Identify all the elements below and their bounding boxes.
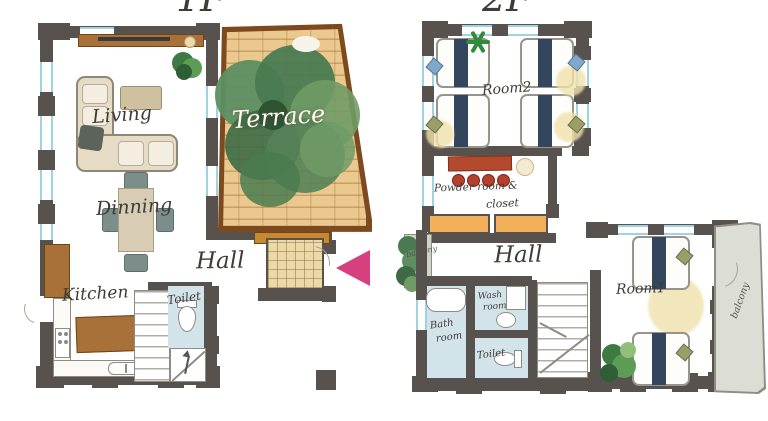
stove-burner (64, 340, 68, 344)
wash-sink (496, 312, 516, 328)
tree-foliage (240, 152, 300, 207)
terrace-label: Terrace (231, 102, 326, 132)
sofa-corner-cushion (77, 124, 104, 151)
window (40, 170, 53, 200)
wall (528, 280, 537, 380)
living-label: Living (91, 104, 152, 127)
stairs-arrow-head (182, 349, 191, 358)
window (508, 25, 538, 36)
plant-icon (620, 342, 636, 358)
sink-faucet (125, 364, 127, 373)
stairs-2f (537, 282, 588, 378)
room1-label: Room1 (616, 281, 666, 297)
rug (556, 66, 586, 96)
wall-pillar (38, 150, 55, 170)
sofa-cushion (82, 84, 108, 104)
kitchen-island (75, 315, 140, 353)
floorplan-canvas: 1F 2F (0, 0, 768, 421)
wall (206, 30, 218, 86)
bathtub (426, 288, 466, 312)
window (664, 225, 694, 235)
hall-label-2f: Hall (494, 244, 543, 268)
wall (548, 156, 557, 208)
tv-screen (98, 37, 170, 41)
wall (590, 270, 601, 382)
powder-counter (448, 155, 512, 171)
entrance-arrow-icon (336, 250, 370, 286)
wall (470, 330, 528, 338)
wall (416, 378, 596, 391)
window (40, 116, 53, 150)
window (206, 166, 218, 196)
window (462, 25, 492, 36)
stove-burner (64, 332, 68, 336)
wall-pillar (316, 370, 336, 390)
wall-pillar (38, 96, 55, 116)
plant-icon (176, 64, 192, 80)
stove-burner (58, 340, 62, 344)
stairs-1f (134, 290, 170, 382)
sofa-cushion (148, 141, 174, 166)
window (422, 176, 434, 206)
window (40, 62, 53, 92)
toilet-tank (514, 350, 522, 368)
powder-label-line1: Powder room & (434, 181, 518, 194)
powder-label-line2: closet (486, 197, 519, 210)
floor2-title: 2F (482, 0, 533, 20)
dining-label: Dinning (96, 196, 173, 219)
wall (206, 118, 218, 166)
wall (598, 224, 720, 235)
wall (430, 24, 580, 36)
tree-foliage (300, 122, 355, 177)
stove-burner (58, 332, 62, 336)
closet-cabinet (494, 214, 548, 234)
powder-sink (516, 158, 534, 176)
wall-pillar (38, 204, 55, 224)
window (40, 224, 53, 240)
terrace-lamp (292, 36, 320, 52)
hall-label-1f: Hall (196, 250, 245, 274)
wall-stub (572, 146, 589, 156)
plant-icon (600, 364, 618, 382)
dining-chair (124, 254, 148, 272)
decor-bowl (184, 36, 196, 48)
kitchen-label: Kitchen (62, 284, 129, 304)
wash-counter (506, 286, 526, 310)
floor1-title: 1F (176, 0, 227, 20)
room2-label: Room2 (482, 80, 532, 97)
closet-cabinet (428, 214, 490, 234)
window (618, 225, 648, 235)
sofa-cushion (118, 141, 144, 166)
